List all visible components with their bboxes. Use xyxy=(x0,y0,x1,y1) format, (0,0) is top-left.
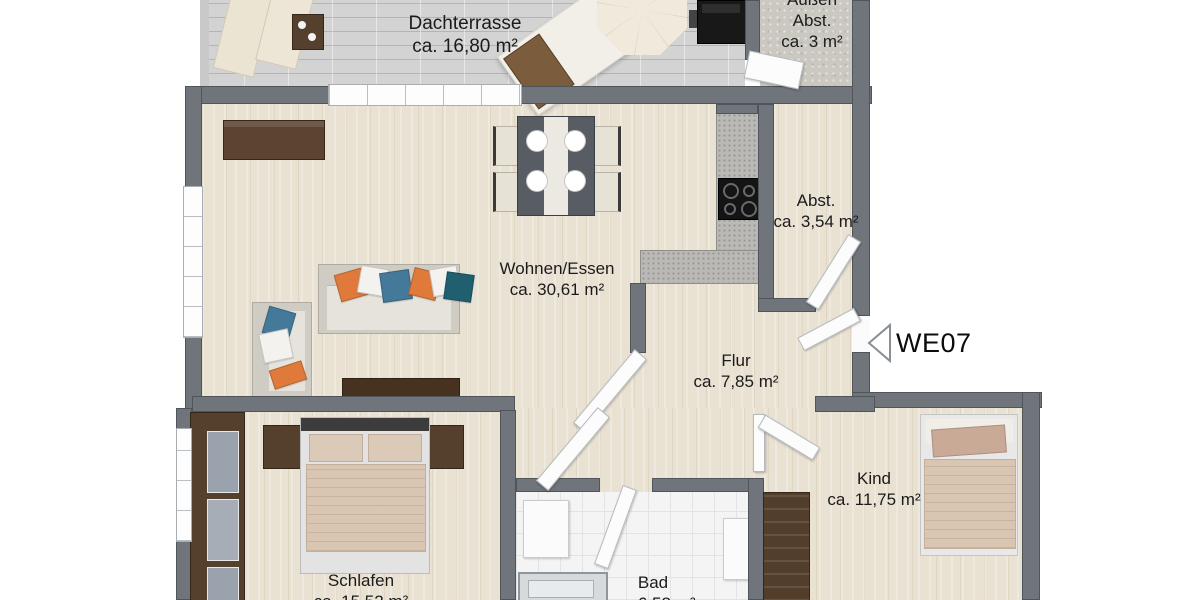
room-name: Abst. xyxy=(773,190,858,211)
grill-handle xyxy=(689,10,697,28)
window xyxy=(183,186,203,338)
wardrobe xyxy=(763,492,810,600)
wall xyxy=(716,104,758,114)
room-name: Kind xyxy=(827,468,920,489)
dining-chair xyxy=(591,126,621,166)
room-name: Außen xyxy=(781,0,842,10)
shower xyxy=(518,572,608,600)
wall xyxy=(500,410,516,600)
wall xyxy=(758,104,774,300)
room-label-flur: Flur ca. 7,85 m² xyxy=(693,350,778,392)
room-area: ca. 15,52 m² xyxy=(314,591,409,600)
dining-table xyxy=(517,116,595,216)
wall xyxy=(652,478,756,492)
armchair xyxy=(252,302,312,400)
kitchen-counter xyxy=(640,250,760,284)
room-area: ca. 30,61 m² xyxy=(500,279,615,300)
room-area: ca. 7,85 m² xyxy=(693,371,778,392)
entrance-arrow-icon xyxy=(866,322,892,364)
room-label-dachterrasse: Dachterrasse ca. 16,80 m² xyxy=(409,12,522,58)
wall xyxy=(1022,392,1040,600)
single-bed xyxy=(920,414,1018,556)
window xyxy=(328,84,522,106)
room-area: ca. 11,75 m² xyxy=(827,489,920,510)
room-area: ca. 3 m² xyxy=(781,31,842,52)
double-bed xyxy=(300,417,430,574)
terrace-side-table xyxy=(292,14,324,50)
wall xyxy=(630,283,646,353)
bathroom-cabinet xyxy=(523,500,569,558)
window xyxy=(176,428,192,542)
room-label-schlafen: Schlafen ca. 15,52 m² xyxy=(314,570,409,600)
room-name: Dachterrasse xyxy=(409,12,522,35)
wall xyxy=(516,478,600,492)
sideboard xyxy=(223,120,325,160)
room-label-kind: Kind ca. 11,75 m² xyxy=(827,468,920,510)
cooktop xyxy=(718,178,759,220)
wall xyxy=(852,0,870,316)
room-label-wohnen-essen: Wohnen/Essen ca. 30,61 m² xyxy=(500,258,615,300)
room-area: ca. 6,58 m² xyxy=(610,593,695,600)
room-label-bad: Bad ca. 6,58 m² xyxy=(610,572,695,600)
wall xyxy=(748,478,764,600)
grill xyxy=(697,0,747,44)
room-label-aussen-abst: Außen Abst. ca. 3 m² xyxy=(781,0,842,52)
wall xyxy=(192,396,515,412)
sofa xyxy=(318,264,460,334)
wall xyxy=(185,86,872,104)
room-name: Bad xyxy=(610,572,695,593)
room-label-abst: Abst. ca. 3,54 m² xyxy=(773,190,858,232)
terrace-edge xyxy=(200,0,209,88)
nightstand xyxy=(263,425,303,469)
unit-code: WE07 xyxy=(896,328,972,358)
nightstand xyxy=(424,425,464,469)
room-name: Schlafen xyxy=(314,570,409,591)
room-area: ca. 16,80 m² xyxy=(409,35,522,58)
floorplan-canvas: Dachterrasse ca. 16,80 m² Außen Abst. ca… xyxy=(0,0,1200,600)
room-name: Flur xyxy=(693,350,778,371)
wall xyxy=(815,396,875,412)
room-name: Abst. xyxy=(781,10,842,31)
wardrobe xyxy=(190,412,245,600)
room-name: Wohnen/Essen xyxy=(500,258,615,279)
wall xyxy=(852,392,1042,408)
dining-chair xyxy=(591,172,621,212)
room-area: ca. 3,54 m² xyxy=(773,211,858,232)
